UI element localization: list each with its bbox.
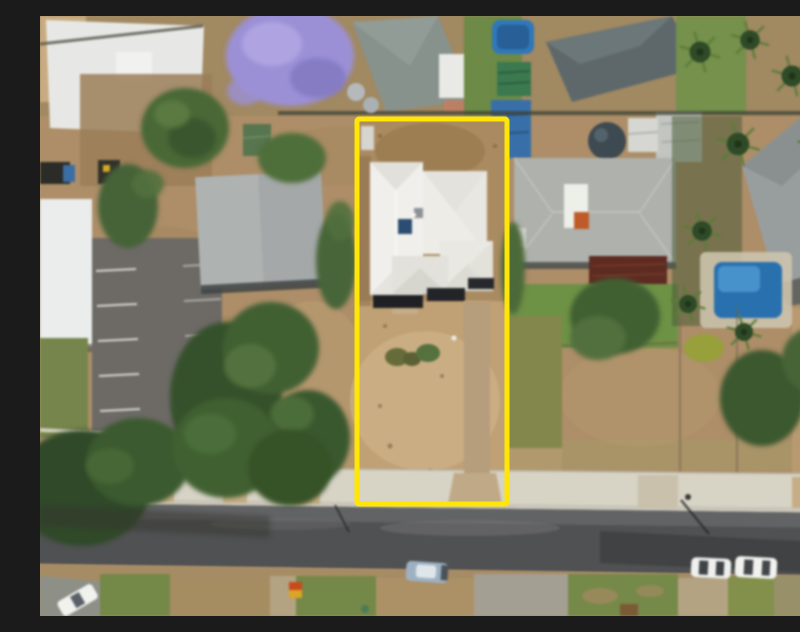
bottom-concrete-apron: [474, 574, 570, 616]
street-tree-lit: [86, 448, 134, 484]
grass-strip-right-of-lot: [508, 316, 562, 456]
metal-tank: [347, 83, 365, 101]
left-house-roof-lit-facet: [195, 174, 264, 289]
bottom-grass-dirt-spot: [582, 588, 618, 604]
person-dot: [452, 336, 457, 341]
tree-lit-top: [270, 396, 314, 432]
jacaranda-highlight: [242, 22, 302, 66]
garden-beds: [497, 62, 531, 96]
power-pole-base: [685, 494, 691, 500]
street-tree-lit: [184, 414, 236, 454]
bottom-dirt: [170, 578, 270, 616]
pool-water-highlight: [718, 266, 760, 292]
tree-lit-top: [224, 344, 276, 388]
road-light-streak: [380, 520, 560, 536]
ground-speck: [388, 444, 393, 449]
veranda-shadow: [468, 278, 494, 289]
lawn-left-edge: [40, 338, 88, 438]
ground-speck: [378, 404, 382, 408]
bottom-grass: [100, 574, 170, 616]
ground-speck: [440, 374, 444, 378]
bottom-mixed-verge: [774, 576, 800, 616]
car-window: [762, 560, 771, 575]
tree-lit-top: [154, 100, 190, 128]
bin-yellow-lid: [289, 590, 302, 598]
brown-box: [620, 604, 638, 616]
yellow-green-bush: [684, 334, 724, 362]
silver-blue-car-roof: [416, 564, 437, 578]
small-green-bush: [361, 605, 369, 613]
ground-speck: [493, 144, 497, 148]
roof-vent-dot: [412, 213, 416, 217]
white-car-on-road: [691, 557, 732, 579]
ground-speck: [383, 324, 387, 328]
trampoline-mat: [497, 25, 529, 49]
bottom-grass-dirt-spot: [636, 585, 664, 597]
lawn-tree-right-lit: [570, 316, 626, 360]
bottom-dirt: [376, 578, 474, 616]
shrub: [326, 201, 354, 241]
white-trailer: [361, 126, 374, 150]
bottom-driveway: [678, 578, 728, 616]
car-window: [716, 561, 725, 575]
white-awning: [439, 54, 465, 98]
backyard-fence-line: [278, 111, 800, 115]
lot-driveway: [464, 301, 490, 473]
front-bush: [416, 344, 440, 362]
jacaranda-wisp: [227, 77, 263, 105]
white-car-on-road: [734, 556, 777, 579]
bottom-grass: [728, 576, 774, 616]
blue-bin: [63, 165, 75, 182]
car-window: [699, 560, 709, 574]
roof-blue-tarp: [398, 219, 412, 234]
footpath-crossing-concrete: [638, 475, 678, 508]
silver-blue-car-hood: [440, 565, 448, 580]
metal-tank: [363, 97, 379, 113]
yellow-item: [103, 165, 110, 172]
lot-driveway-apron: [448, 473, 502, 504]
tree: [132, 170, 164, 198]
aerial-photo-canvas: [40, 16, 800, 616]
car-window: [744, 559, 754, 574]
veranda-shadow: [373, 295, 423, 308]
water-tank: [588, 122, 626, 160]
veranda-shadow: [427, 288, 465, 301]
dirt-texture-2: [560, 346, 720, 446]
jacaranda-shade: [290, 58, 346, 98]
roof-ac-unit: [414, 208, 423, 218]
aerial-photo: Aerial drone photograph of a residential…: [40, 16, 800, 616]
water-tank-highlight: [594, 128, 608, 142]
street-tree: [248, 430, 332, 506]
front-step-path: [392, 308, 418, 314]
small-white-shed: [628, 118, 658, 152]
white-building-roof: [40, 199, 92, 347]
footpath-crossing: [792, 477, 800, 508]
tree: [258, 133, 326, 183]
orange-roof-unit: [574, 212, 589, 229]
ground-speck: [378, 134, 382, 138]
